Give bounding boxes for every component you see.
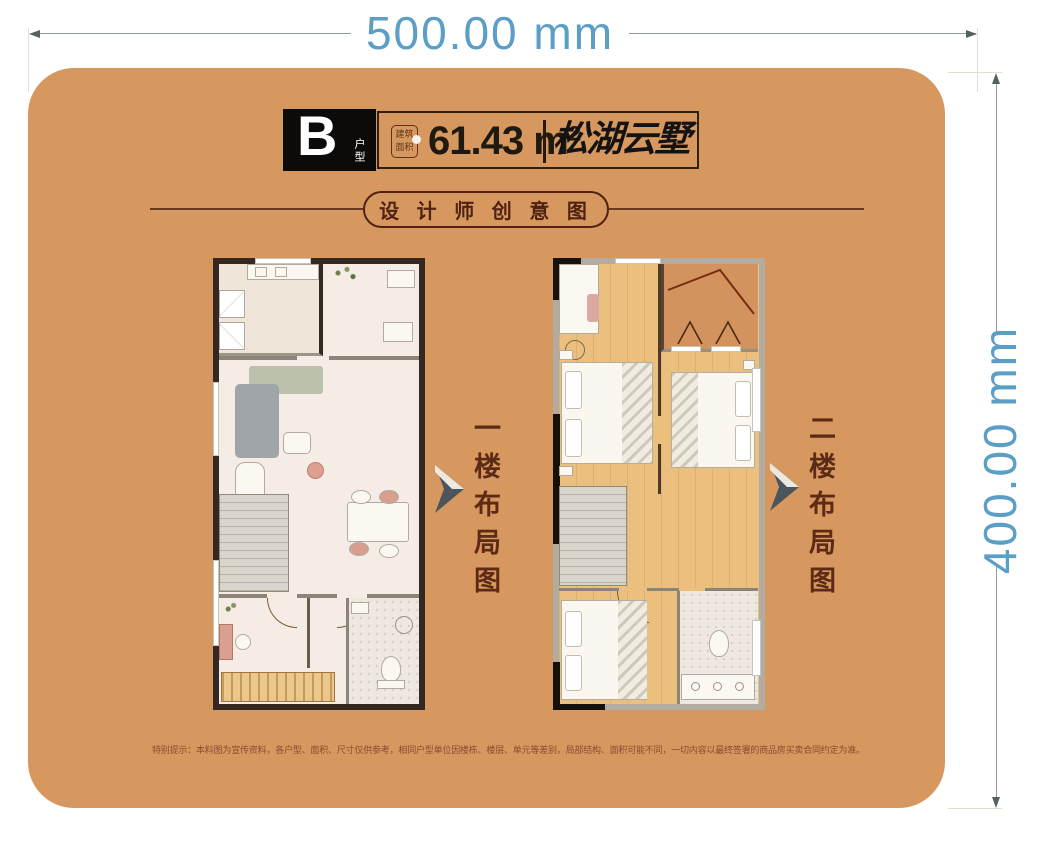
terrace bbox=[661, 264, 758, 352]
pillow bbox=[565, 655, 582, 691]
dining-table bbox=[347, 502, 409, 542]
dining-chair bbox=[351, 490, 371, 504]
subtitle-line-left bbox=[150, 208, 363, 210]
bay-window-seat bbox=[221, 672, 335, 702]
unit-type-box: B 户型 bbox=[283, 109, 376, 171]
wall-segment bbox=[553, 662, 560, 710]
toilet bbox=[709, 630, 729, 657]
dining-chair bbox=[379, 544, 399, 558]
bed bbox=[561, 362, 653, 464]
dim-line-right-lower-segment bbox=[996, 565, 997, 805]
bed bbox=[671, 372, 755, 468]
second-floor-label: 二楼布局图 bbox=[801, 414, 840, 604]
floorplan-poster: 500.00 mm 400.00 mm B 户型 建筑 面积 61.43 m² … bbox=[0, 0, 1051, 848]
window bbox=[255, 258, 311, 264]
staircase bbox=[219, 494, 289, 592]
roof-slope-lines-icon bbox=[664, 264, 758, 349]
header-divider bbox=[543, 120, 546, 163]
ottoman bbox=[307, 462, 324, 479]
wardrobe-item bbox=[587, 294, 599, 322]
subtitle-line-right bbox=[609, 208, 864, 210]
bed-blanket bbox=[622, 363, 652, 463]
dining-chair-pink bbox=[379, 490, 399, 504]
stamp-dot-icon bbox=[412, 135, 421, 144]
subtitle-pill: 设 计 师 创 意 图 bbox=[363, 191, 609, 228]
window bbox=[752, 368, 761, 432]
first-floor-plan bbox=[213, 258, 425, 710]
kitchen-sink bbox=[255, 267, 267, 277]
chevron-right-icon bbox=[432, 463, 466, 515]
dim-arrow-up-icon bbox=[992, 73, 1000, 84]
height-dimension-label: 400.00 mm bbox=[950, 330, 1050, 570]
vanity-knob-icon bbox=[735, 682, 744, 691]
coffee-table bbox=[283, 432, 311, 454]
dim-arrow-down-icon bbox=[992, 797, 1000, 808]
pillow bbox=[565, 611, 582, 647]
bed bbox=[561, 600, 647, 700]
bathroom-sink bbox=[351, 602, 369, 614]
dim-line-right-upper-segment bbox=[996, 80, 997, 335]
washer-unit bbox=[219, 290, 245, 318]
interior-wall bbox=[307, 598, 310, 668]
pillow bbox=[565, 419, 582, 457]
wall-segment bbox=[553, 704, 605, 710]
bed-blanket bbox=[672, 373, 698, 467]
window bbox=[752, 620, 761, 676]
shower-drain-icon bbox=[395, 616, 413, 634]
toilet bbox=[381, 656, 401, 682]
toilet-tank bbox=[377, 680, 405, 689]
second-floor-plan bbox=[553, 258, 765, 710]
vanity-knob-icon bbox=[691, 682, 700, 691]
sofa bbox=[235, 384, 279, 458]
chair-side bbox=[383, 322, 413, 342]
window bbox=[615, 258, 661, 264]
vanity-knob-icon bbox=[713, 682, 722, 691]
door-swing-arc bbox=[267, 598, 297, 628]
terrace-door-threshold bbox=[711, 346, 741, 352]
nightstand bbox=[559, 350, 573, 360]
kitchen-stove bbox=[275, 267, 287, 277]
disclaimer-text: 特别提示：本料图为宣传资料，各户型、面积、尺寸仅供参考，相同户型单位因楼栋、楼层… bbox=[152, 743, 852, 756]
dim-extension-right-bottom bbox=[948, 808, 1002, 809]
width-dimension-label: 500.00 mm bbox=[290, 6, 690, 60]
door-opening bbox=[297, 356, 329, 360]
chevron-right-icon bbox=[767, 461, 801, 513]
desk bbox=[219, 624, 233, 660]
door-opening bbox=[657, 416, 662, 444]
window bbox=[213, 382, 219, 456]
bed-blanket bbox=[618, 601, 647, 699]
unit-type-letter: B bbox=[297, 105, 337, 167]
pillow bbox=[735, 381, 751, 417]
staircase bbox=[559, 486, 627, 586]
pillow bbox=[565, 371, 582, 409]
dim-extension-top-right bbox=[977, 28, 978, 92]
terrace-door-threshold bbox=[671, 346, 701, 352]
first-floor-label: 一楼布局图 bbox=[466, 414, 505, 604]
dining-chair-pink bbox=[349, 542, 369, 556]
desk-chair bbox=[235, 634, 251, 650]
appliance-unit bbox=[219, 322, 245, 350]
unit-type-suffix: 户型 bbox=[351, 138, 367, 164]
pillow bbox=[735, 425, 751, 461]
interior-wall bbox=[658, 264, 661, 494]
dim-arrow-left-icon bbox=[29, 30, 40, 38]
dim-arrow-right-icon bbox=[966, 30, 977, 38]
project-brand-name: 松湖云墅 bbox=[552, 118, 686, 161]
plant-icon bbox=[329, 264, 359, 282]
plant-icon bbox=[221, 600, 239, 618]
nightstand bbox=[559, 466, 573, 476]
window bbox=[213, 560, 219, 646]
chair-top bbox=[387, 270, 415, 288]
